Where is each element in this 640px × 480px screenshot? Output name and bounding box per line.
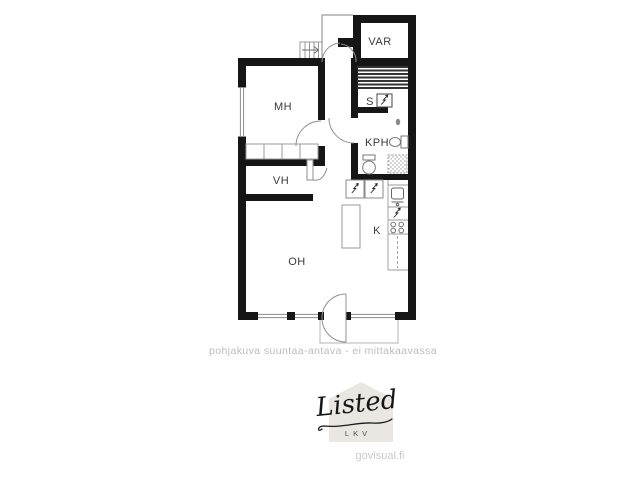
- plan-caption: pohjakuva suuntaa-antava - ei mittakaava…: [123, 345, 523, 357]
- terrace-outline: [320, 316, 398, 343]
- logo-subtext: LKV: [316, 429, 396, 438]
- lightning-bolt-icon: [394, 208, 400, 217]
- stair-direction-arrow: [302, 47, 319, 54]
- room-label-var: VAR: [368, 36, 391, 48]
- livingroom-windows: [258, 312, 395, 320]
- cooktop: [391, 222, 404, 233]
- bathroom-sink: [390, 136, 409, 148]
- entry-porch: [322, 15, 353, 58]
- room-label-oh: OH: [288, 256, 306, 268]
- toilet: [363, 155, 376, 174]
- terrace-door: [322, 294, 346, 342]
- bedroom-wardrobes: [246, 144, 318, 159]
- sauna-benches: [357, 67, 408, 88]
- shower: [388, 155, 407, 173]
- stove: [394, 208, 400, 217]
- room-label-vh: VH: [273, 175, 289, 187]
- room-label-kph: KPH: [365, 137, 389, 149]
- lightning-bolt-icon: [352, 184, 358, 193]
- windows: [238, 87, 395, 320]
- lightning-bolt-icon: [381, 95, 387, 104]
- washer-dryer: [346, 180, 383, 198]
- kitchen-island: [342, 205, 360, 248]
- watermark-text: govisual.fi: [345, 450, 415, 462]
- sauna-stove: [377, 94, 392, 107]
- floorplan-page: MH VH OH KPH K S VAR pohjakuva suuntaa-a…: [0, 0, 640, 480]
- kitchen-sink: [392, 188, 404, 206]
- lightning-bolt-icon: [371, 184, 377, 193]
- room-label-mh: MH: [274, 101, 292, 113]
- room-label-k: K: [373, 225, 381, 237]
- bedroom-window: [238, 87, 246, 137]
- stairs: [300, 42, 322, 60]
- bedroom-door-arc: [296, 121, 321, 146]
- bathroom-door-arc: [329, 118, 354, 143]
- room-label-s: S: [366, 96, 374, 108]
- sauna-door-hinge: [396, 119, 400, 125]
